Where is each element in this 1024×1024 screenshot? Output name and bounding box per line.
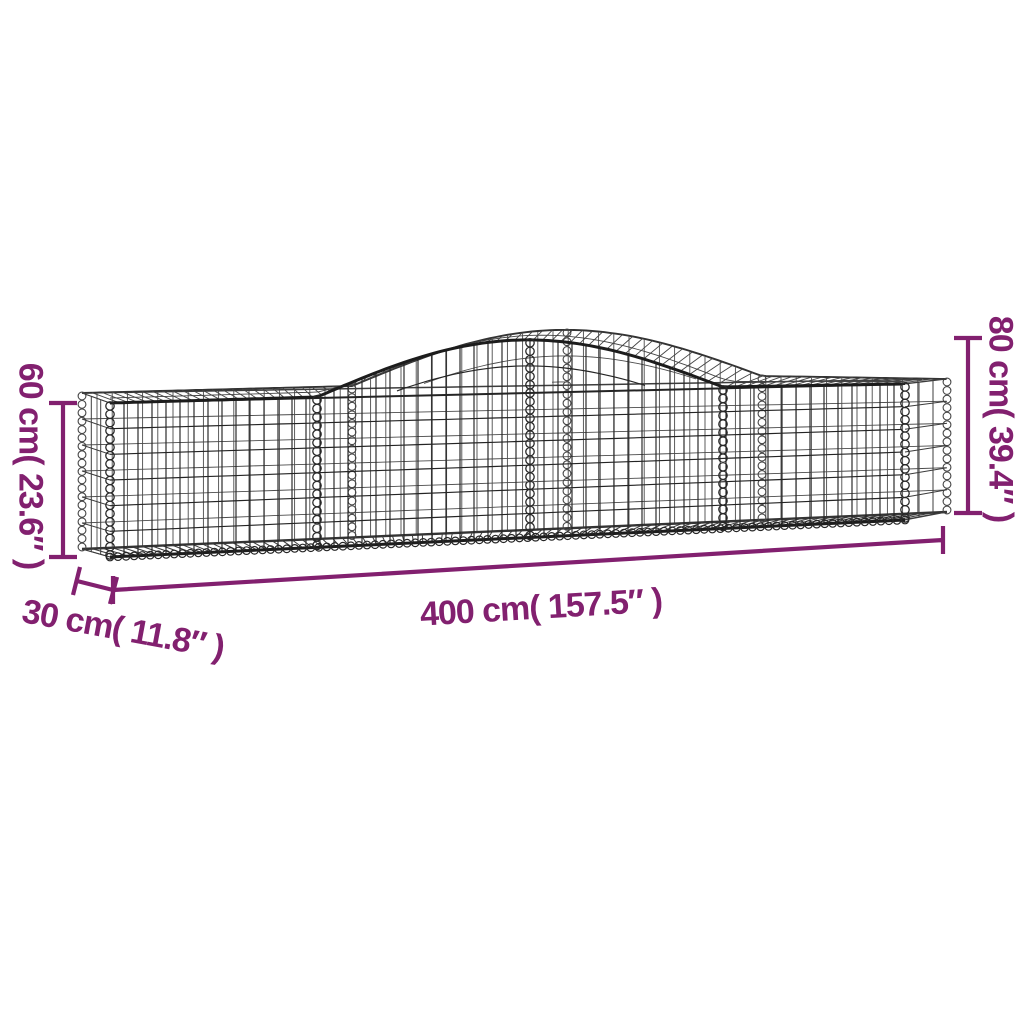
gabion-basket-illustration: [0, 0, 1024, 1024]
wire-mesh-basket: [78, 329, 951, 561]
height-right-dimension-line: [954, 338, 982, 513]
product-dimension-diagram: 60 cm( 23.6″ ) 80 cm( 39.4″ ) 400 cm( 15…: [0, 0, 1024, 1024]
depth-dimension-line: [73, 567, 117, 604]
height-left-dimension-line: [49, 403, 77, 557]
dimension-label-height-right: 80 cm( 39.4″ ): [981, 316, 1020, 522]
dimension-label-height-left: 60 cm( 23.6″ ): [11, 363, 50, 569]
